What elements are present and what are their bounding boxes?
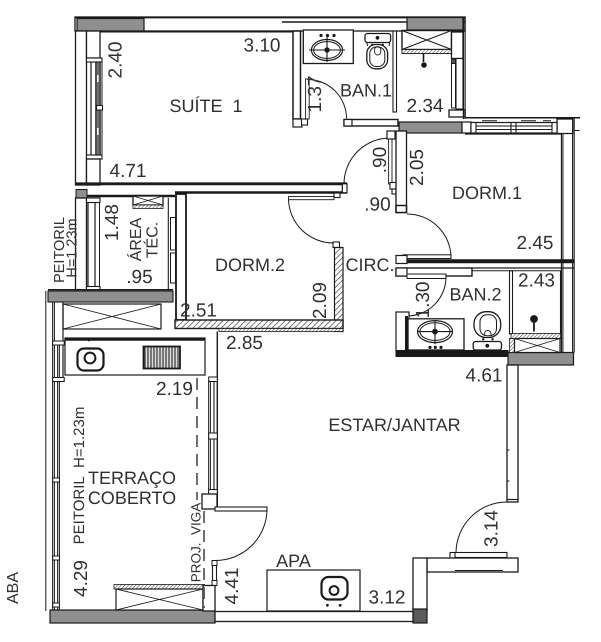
svg-text:.90: .90 xyxy=(370,147,391,173)
svg-text:4.61: 4.61 xyxy=(466,366,503,387)
svg-text:1.48: 1.48 xyxy=(102,204,123,241)
svg-text:.95: .95 xyxy=(126,267,152,288)
svg-text:2.51: 2.51 xyxy=(180,301,217,322)
svg-text:TÉC.: TÉC. xyxy=(143,222,161,258)
svg-text:2.05: 2.05 xyxy=(407,149,428,186)
svg-text:H=1.23m: H=1.23m xyxy=(65,218,81,277)
svg-text:4.29: 4.29 xyxy=(71,560,92,597)
svg-text:1.37: 1.37 xyxy=(305,76,326,113)
svg-text:APA: APA xyxy=(276,551,311,571)
svg-text:CIRC.: CIRC. xyxy=(346,255,395,275)
svg-text:4.71: 4.71 xyxy=(110,161,147,182)
svg-text:PEITORIL H=1.23m: PEITORIL H=1.23m xyxy=(71,407,88,545)
svg-text:ABA: ABA xyxy=(5,572,22,604)
svg-text:2.34: 2.34 xyxy=(407,96,444,117)
svg-text:3.10: 3.10 xyxy=(244,36,281,57)
svg-text:1.30: 1.30 xyxy=(413,282,434,319)
svg-text:.90: .90 xyxy=(364,195,390,216)
svg-text:3.14: 3.14 xyxy=(481,510,502,547)
svg-text:2.45: 2.45 xyxy=(517,233,554,254)
svg-text:COBERTO: COBERTO xyxy=(88,488,176,508)
svg-text:DORM.2: DORM.2 xyxy=(215,255,285,275)
svg-text:PROJ. VIGA: PROJ. VIGA xyxy=(189,503,204,583)
svg-text:SUÍTE 1: SUÍTE 1 xyxy=(169,96,242,116)
svg-text:2.09: 2.09 xyxy=(310,282,331,319)
svg-text:4.41: 4.41 xyxy=(222,568,243,605)
svg-text:2.19: 2.19 xyxy=(156,379,193,400)
svg-text:ÁREA: ÁREA xyxy=(127,217,145,261)
svg-text:2.43: 2.43 xyxy=(518,271,555,292)
svg-text:2.40: 2.40 xyxy=(105,42,126,79)
svg-text:3.12: 3.12 xyxy=(369,588,406,609)
svg-text:DORM.1: DORM.1 xyxy=(452,183,522,203)
svg-text:2.85: 2.85 xyxy=(226,333,263,354)
svg-text:BAN.1: BAN.1 xyxy=(340,81,392,101)
svg-text:BAN.2: BAN.2 xyxy=(449,285,501,305)
svg-text:ESTAR/JANTAR: ESTAR/JANTAR xyxy=(328,415,460,435)
svg-text:TERRAÇO: TERRAÇO xyxy=(88,468,176,488)
